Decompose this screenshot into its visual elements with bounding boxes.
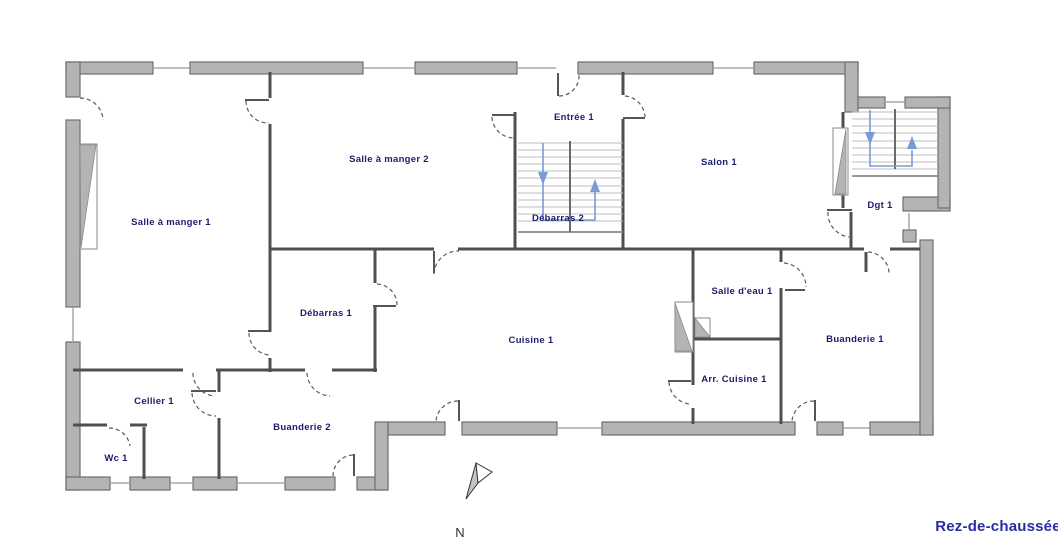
north-arrow-icon: N (455, 463, 492, 540)
room-label-buanderie-1: Buanderie 1 (826, 334, 884, 345)
room-label-debarras-2: Débarras 2 (532, 213, 584, 224)
exterior-walls (66, 62, 950, 490)
stair-up-arrow (907, 136, 917, 149)
floor-plan: N Salle à manger 1 Salle à manger 2 Entr… (0, 0, 1058, 555)
staircase-dgt (852, 109, 938, 176)
door-leaves (191, 73, 852, 476)
door-arcs (80, 75, 889, 476)
room-label-buanderie-2: Buanderie 2 (273, 422, 331, 433)
room-label-entree-1: Entrée 1 (554, 112, 594, 123)
room-label-salon-1: Salon 1 (701, 157, 737, 168)
room-label-cellier-1: Cellier 1 (134, 396, 174, 407)
room-label-wc-1: Wc 1 (104, 453, 128, 464)
windows (73, 68, 909, 483)
room-label-salle-a-manger-2: Salle à manger 2 (349, 154, 429, 165)
room-label-salle-deau-1: Salle d'eau 1 (711, 286, 772, 297)
room-label-dgt-1: Dgt 1 (867, 200, 893, 211)
room-label-cuisine-1: Cuisine 1 (509, 335, 554, 346)
north-label: N (455, 525, 464, 540)
floor-plan-page: N Salle à manger 1 Salle à manger 2 Entr… (0, 0, 1058, 555)
room-label-salle-a-manger-1: Salle à manger 1 (131, 217, 211, 228)
room-label-debarras-1: Débarras 1 (300, 308, 353, 319)
room-labels: Salle à manger 1 Salle à manger 2 Entrée… (104, 112, 893, 464)
stair-down-arrow (865, 132, 875, 145)
room-label-arr-cuisine-1: Arr. Cuisine 1 (701, 374, 767, 385)
stair-direction-path (870, 110, 912, 166)
plan-title: Rez-de-chaussée (935, 518, 1058, 535)
